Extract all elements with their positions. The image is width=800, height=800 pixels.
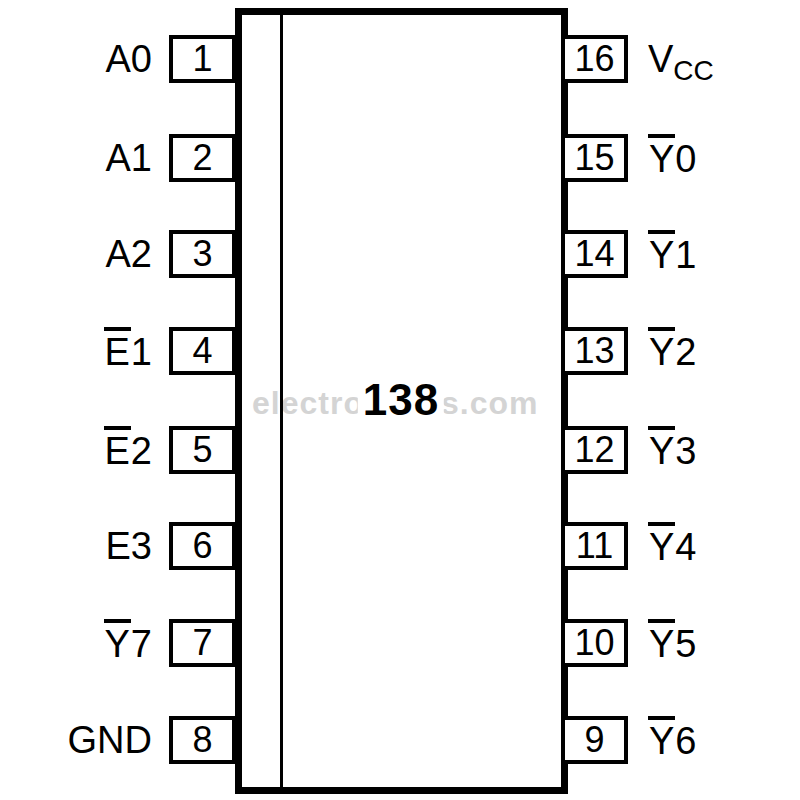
pin-number-box: 2 xyxy=(169,134,236,182)
pin-label: Y6 xyxy=(648,716,697,764)
subscript: CC xyxy=(673,55,713,86)
pin-number-box: 13 xyxy=(561,327,628,375)
pin-number: 1 xyxy=(173,39,232,79)
overbar: Y xyxy=(648,716,675,760)
pin-label: Y1 xyxy=(648,230,697,278)
pin-label: A2 xyxy=(0,230,152,278)
overbar: E xyxy=(104,426,131,470)
pin-row: E2512Y3 xyxy=(0,426,800,474)
pin-label: Y0 xyxy=(648,134,697,182)
pin-number: 16 xyxy=(565,39,624,79)
overbar: Y xyxy=(104,619,131,663)
pin-number-box: 15 xyxy=(561,134,628,182)
ic-inner-divider-line xyxy=(280,15,283,787)
pin-number: 5 xyxy=(173,430,232,470)
pin-number-box: 12 xyxy=(561,426,628,474)
pin-label: VCC xyxy=(648,35,714,83)
pin-label: Y2 xyxy=(648,327,697,375)
pin-number: 9 xyxy=(565,720,624,760)
pin-number-box: 5 xyxy=(169,426,236,474)
pin-number: 15 xyxy=(565,138,624,178)
pin-row: A0116VCC xyxy=(0,35,800,83)
overbar: Y xyxy=(648,426,675,470)
pin-number: 12 xyxy=(565,430,624,470)
pin-number-box: 8 xyxy=(169,716,236,764)
pin-number-box: 16 xyxy=(561,35,628,83)
pin-number: 3 xyxy=(173,234,232,274)
pin-number-box: 10 xyxy=(561,619,628,667)
pin-label: Y3 xyxy=(648,426,697,474)
pin-number-box: 1 xyxy=(169,35,236,83)
overbar: Y xyxy=(648,134,675,178)
pin-number-box: 9 xyxy=(561,716,628,764)
pin-number-box: 3 xyxy=(169,230,236,278)
pin-label: E3 xyxy=(0,522,152,570)
pin-label: Y5 xyxy=(648,619,697,667)
pin-row: A1215Y0 xyxy=(0,134,800,182)
overbar: Y xyxy=(648,230,675,274)
pinout-diagram: electro s.com 138 A0116VCCA1215Y0A2314Y1… xyxy=(0,0,800,800)
overbar: E xyxy=(104,327,131,371)
pin-number: 8 xyxy=(173,720,232,760)
pin-label: Y4 xyxy=(648,522,697,570)
pin-label: E2 xyxy=(0,426,152,474)
pin-number-box: 11 xyxy=(561,522,628,570)
ic-part-number: 138 xyxy=(358,375,444,425)
pin-label: E1 xyxy=(0,327,152,375)
pin-number: 7 xyxy=(173,623,232,663)
pin-label: A1 xyxy=(0,134,152,182)
overbar: Y xyxy=(648,522,675,566)
overbar: Y xyxy=(648,327,675,371)
overbar: Y xyxy=(648,619,675,663)
pin-number-box: 6 xyxy=(169,522,236,570)
pin-number: 6 xyxy=(173,526,232,566)
pin-label: GND xyxy=(0,716,152,764)
pin-number-box: 14 xyxy=(561,230,628,278)
pin-number: 13 xyxy=(565,331,624,371)
pin-number: 11 xyxy=(565,526,624,566)
pin-label: Y7 xyxy=(0,619,152,667)
pin-row: E3611Y4 xyxy=(0,522,800,570)
pin-number-box: 7 xyxy=(169,619,236,667)
pin-number: 4 xyxy=(173,331,232,371)
pin-row: Y7710Y5 xyxy=(0,619,800,667)
pin-row: GND89Y6 xyxy=(0,716,800,764)
pin-number: 2 xyxy=(173,138,232,178)
pin-number-box: 4 xyxy=(169,327,236,375)
pin-number: 14 xyxy=(565,234,624,274)
pin-number: 10 xyxy=(565,623,624,663)
pin-row: A2314Y1 xyxy=(0,230,800,278)
pin-row: E1413Y2 xyxy=(0,327,800,375)
pin-label: A0 xyxy=(0,35,152,83)
